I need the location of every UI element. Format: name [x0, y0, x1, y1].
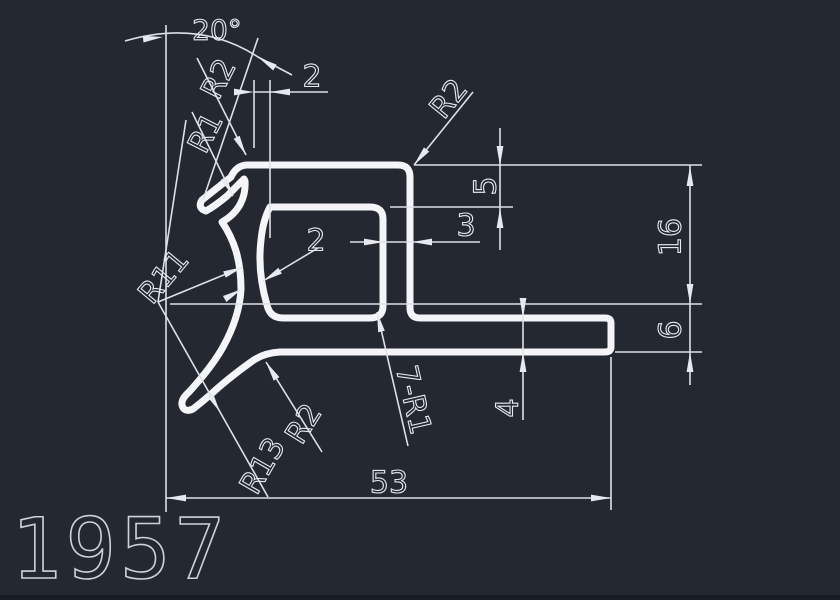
arrow-16-6-shared [687, 284, 694, 304]
arrow-2top-left [234, 89, 254, 96]
dim-text-2-mid[interactable]: 2 [306, 224, 325, 259]
arrow-6-bottom [687, 352, 694, 372]
arrow-r2-top-left [234, 136, 249, 157]
dim-text-r2-bottom[interactable]: R2 [279, 398, 330, 450]
drawing-canvas[interactable]: 20° 2 R2 R1 R2 5 3 2 R11 16 6 4 7-R1 R2 … [0, 0, 840, 600]
arrow-r13 [207, 393, 223, 414]
drawing-number: 1957 [11, 500, 229, 598]
arrow-3-right [412, 239, 432, 246]
arrow-20deg-right [256, 54, 277, 70]
dim-text-3[interactable]: 3 [456, 209, 475, 244]
cad-viewport[interactable]: 20° 2 R2 R1 R2 5 3 2 R11 16 6 4 7-R1 R2 … [0, 0, 840, 600]
dim-text-53[interactable]: 53 [370, 466, 408, 501]
arrow-2top-right [270, 89, 290, 96]
bottom-edge-strip [0, 595, 840, 600]
arrow-5-top [497, 146, 504, 166]
dim-text-angle-20[interactable]: 20° [192, 14, 242, 47]
arrow-53-right [591, 495, 611, 502]
dim-text-r13[interactable]: R13 [233, 432, 293, 501]
dim-text-4[interactable]: 4 [491, 398, 526, 417]
dim-text-2-top[interactable]: 2 [302, 60, 321, 95]
dim-text-7r1[interactable]: 7-R1 [388, 362, 438, 438]
arrow-5-bottom [497, 208, 504, 228]
dim-text-5[interactable]: 5 [469, 176, 504, 195]
dim-text-r2-top-right[interactable]: R2 [423, 72, 475, 125]
dim-text-16[interactable]: 16 [654, 218, 689, 256]
dim-text-6[interactable]: 6 [654, 320, 689, 339]
dim-text-r11[interactable]: R11 [132, 243, 197, 311]
dim-text-r1[interactable]: R1 [181, 107, 230, 158]
dim-text-r2-top-left[interactable]: R2 [194, 53, 243, 104]
arrow-r2-bottom [263, 360, 279, 381]
arrow-16-top [687, 166, 694, 186]
